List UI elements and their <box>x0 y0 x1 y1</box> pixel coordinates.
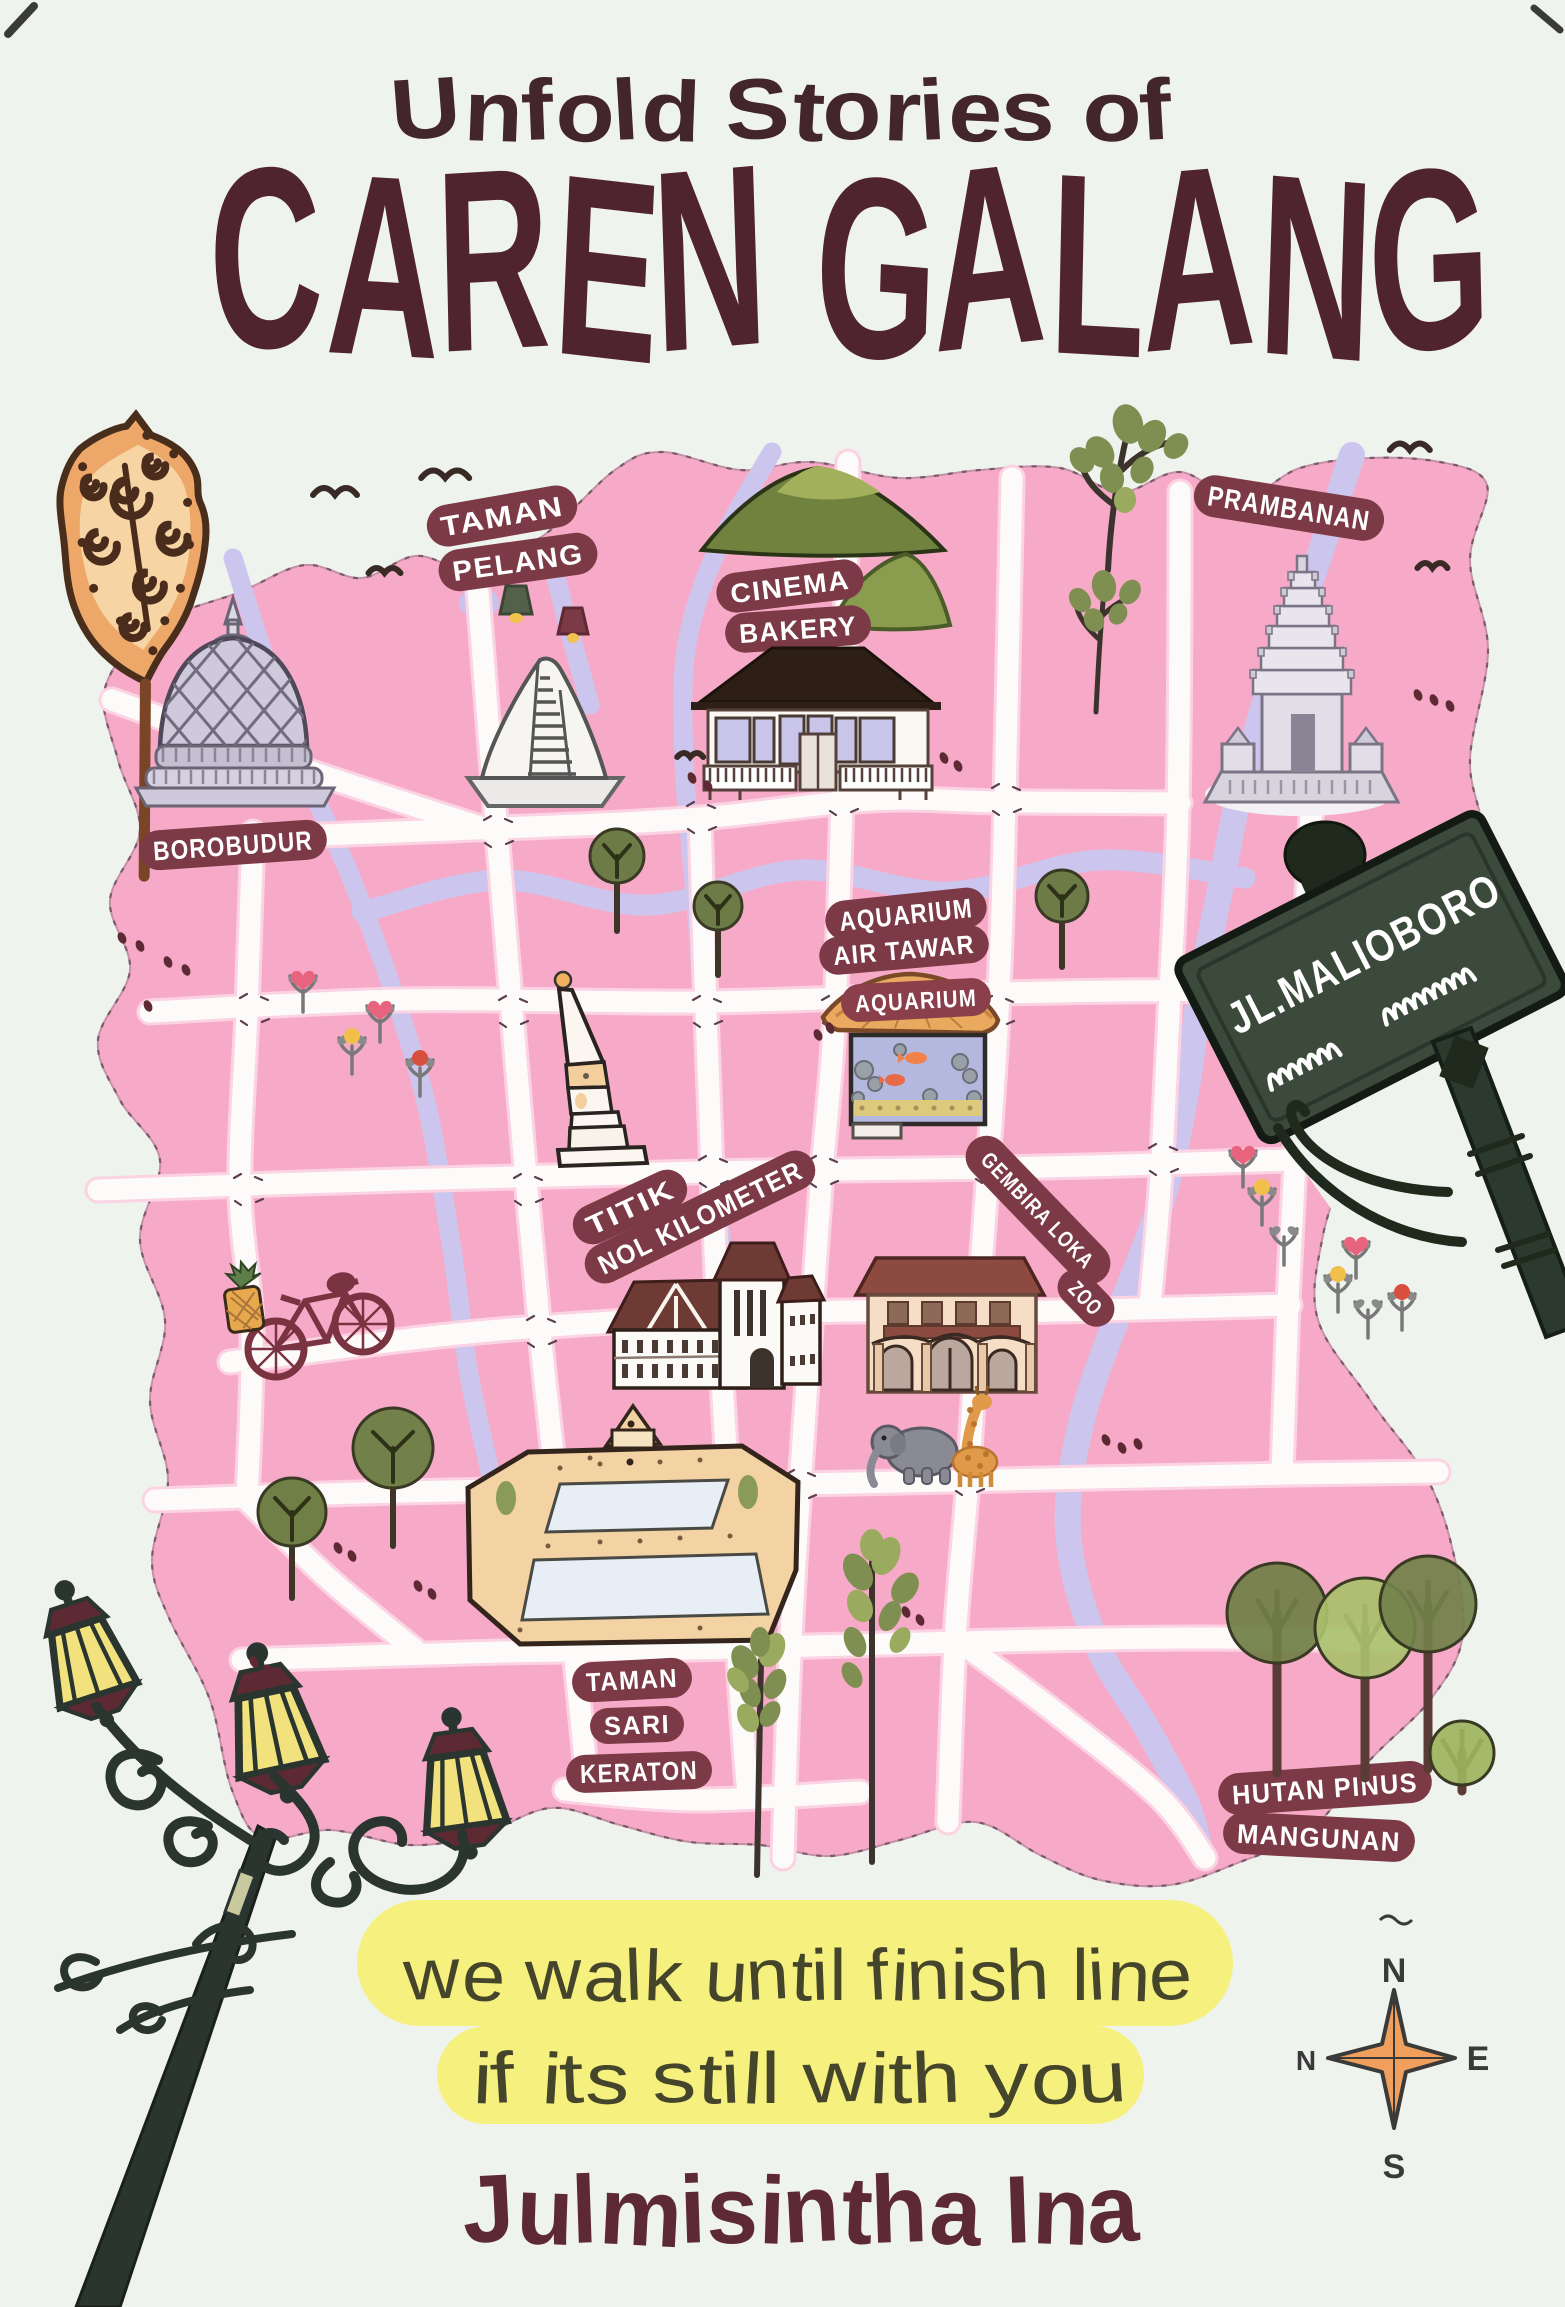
svg-text:N: N <box>1296 2045 1316 2076</box>
svg-text:S: S <box>1383 2148 1406 2186</box>
svg-text:TAMAN: TAMAN <box>585 1663 678 1698</box>
svg-text:CAREN GALANG: CAREN GALANG <box>200 111 1494 414</box>
svg-text:we walk until finish line: we walk until finish line <box>401 1933 1194 2018</box>
svg-text:KERATON: KERATON <box>580 1755 699 1789</box>
svg-text:Julmisintha Ina: Julmisintha Ina <box>459 2154 1141 2268</box>
svg-text:E: E <box>1467 2040 1490 2078</box>
svg-text:SARI: SARI <box>603 1709 670 1741</box>
svg-text:N: N <box>1382 1952 1407 1990</box>
